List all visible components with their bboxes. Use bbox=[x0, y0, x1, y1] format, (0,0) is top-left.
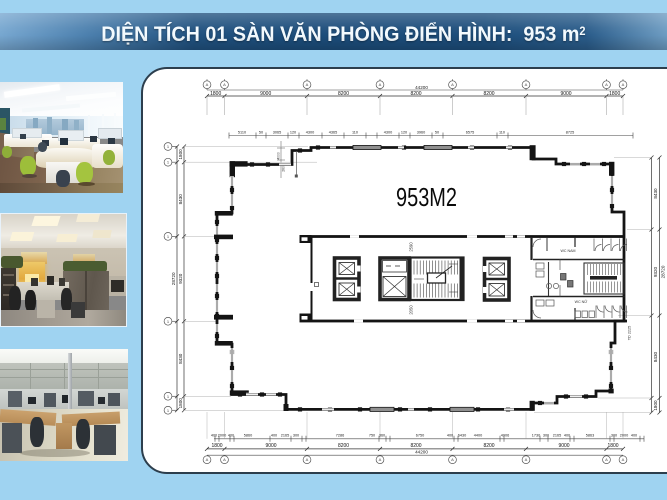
svg-text:4000: 4000 bbox=[277, 152, 281, 160]
svg-text:2000: 2000 bbox=[620, 434, 628, 438]
svg-text:A: A bbox=[206, 457, 209, 462]
svg-text:8430: 8430 bbox=[178, 353, 183, 364]
svg-text:6430: 6430 bbox=[458, 434, 466, 438]
svg-text:400: 400 bbox=[447, 434, 453, 438]
svg-text:9000: 9000 bbox=[560, 91, 571, 97]
svg-text:2165: 2165 bbox=[553, 434, 561, 438]
svg-text:2165: 2165 bbox=[281, 434, 289, 438]
svg-text:9000: 9000 bbox=[558, 443, 569, 449]
svg-text:A: A bbox=[379, 82, 382, 87]
svg-text:4400: 4400 bbox=[474, 434, 482, 438]
svg-text:110: 110 bbox=[499, 130, 505, 134]
svg-text:A: A bbox=[306, 457, 309, 462]
svg-text:2050: 2050 bbox=[409, 305, 414, 315]
svg-text:4906: 4906 bbox=[501, 434, 509, 438]
svg-text:8725: 8725 bbox=[566, 130, 574, 134]
svg-text:400: 400 bbox=[271, 434, 277, 438]
svg-text:A: A bbox=[223, 457, 226, 462]
svg-text:953M2: 953M2 bbox=[396, 182, 457, 212]
svg-text:9320: 9320 bbox=[653, 266, 658, 277]
svg-text:1: 1 bbox=[167, 144, 170, 149]
svg-text:1730: 1730 bbox=[532, 434, 540, 438]
svg-text:WC NỮ: WC NỮ bbox=[575, 299, 588, 304]
svg-text:360: 360 bbox=[379, 434, 385, 438]
svg-text:44200: 44200 bbox=[415, 450, 428, 455]
svg-text:5110: 5110 bbox=[238, 130, 246, 134]
svg-text:3065: 3065 bbox=[273, 130, 281, 134]
svg-text:5860: 5860 bbox=[244, 434, 252, 438]
svg-text:300: 300 bbox=[611, 434, 617, 438]
svg-text:2000: 2000 bbox=[218, 434, 226, 438]
svg-text:8200: 8200 bbox=[483, 91, 494, 97]
svg-text:44200: 44200 bbox=[415, 85, 428, 90]
svg-text:WC NAM: WC NAM bbox=[561, 249, 576, 253]
svg-text:8200: 8200 bbox=[483, 443, 494, 449]
svg-text:120: 120 bbox=[401, 130, 407, 134]
svg-text:28720: 28720 bbox=[661, 265, 666, 278]
svg-text:28720: 28720 bbox=[171, 272, 176, 285]
svg-text:A: A bbox=[451, 82, 454, 87]
svg-text:9000: 9000 bbox=[260, 91, 271, 97]
svg-text:120: 120 bbox=[290, 130, 296, 134]
svg-text:2590: 2590 bbox=[409, 242, 414, 252]
svg-text:A: A bbox=[525, 82, 528, 87]
svg-text:3960: 3960 bbox=[417, 130, 425, 134]
svg-text:1: 1 bbox=[167, 408, 170, 413]
svg-text:A: A bbox=[605, 457, 608, 462]
svg-text:8430: 8430 bbox=[178, 194, 183, 205]
svg-text:9000: 9000 bbox=[265, 443, 276, 449]
svg-text:1800: 1800 bbox=[609, 91, 620, 97]
svg-text:4300: 4300 bbox=[306, 130, 314, 134]
svg-text:1800: 1800 bbox=[653, 400, 658, 411]
svg-text:750: 750 bbox=[369, 434, 375, 438]
svg-text:1: 1 bbox=[167, 319, 170, 324]
svg-text:50: 50 bbox=[259, 130, 263, 134]
svg-text:A: A bbox=[622, 82, 625, 87]
svg-text:7286: 7286 bbox=[336, 434, 344, 438]
svg-text:TD 2225: TD 2225 bbox=[628, 326, 632, 341]
svg-text:1800: 1800 bbox=[211, 443, 222, 449]
svg-text:110: 110 bbox=[352, 130, 358, 134]
svg-text:1800: 1800 bbox=[178, 398, 183, 409]
svg-text:400: 400 bbox=[211, 434, 217, 438]
svg-text:400: 400 bbox=[631, 434, 637, 438]
svg-text:A: A bbox=[306, 82, 309, 87]
svg-text:8430: 8430 bbox=[653, 188, 658, 199]
svg-text:1: 1 bbox=[167, 160, 170, 165]
svg-text:8200: 8200 bbox=[410, 91, 421, 97]
svg-text:50: 50 bbox=[435, 130, 439, 134]
svg-text:A: A bbox=[379, 457, 382, 462]
svg-text:8200: 8200 bbox=[338, 443, 349, 449]
svg-text:8200: 8200 bbox=[410, 443, 421, 449]
svg-text:A: A bbox=[622, 457, 625, 462]
svg-text:9320: 9320 bbox=[178, 273, 183, 284]
svg-text:4300: 4300 bbox=[384, 130, 392, 134]
svg-text:A: A bbox=[451, 457, 454, 462]
svg-text:A: A bbox=[223, 82, 226, 87]
svg-text:8430: 8430 bbox=[653, 351, 658, 362]
svg-text:6575: 6575 bbox=[466, 130, 474, 134]
svg-text:400: 400 bbox=[564, 434, 570, 438]
svg-text:8200: 8200 bbox=[338, 91, 349, 97]
svg-text:400: 400 bbox=[228, 434, 234, 438]
svg-text:1: 1 bbox=[167, 394, 170, 399]
svg-text:1: 1 bbox=[167, 234, 170, 239]
svg-text:1800: 1800 bbox=[210, 91, 221, 97]
svg-text:A: A bbox=[525, 457, 528, 462]
svg-text:6750: 6750 bbox=[416, 434, 424, 438]
svg-text:300: 300 bbox=[293, 434, 299, 438]
svg-text:5863: 5863 bbox=[586, 434, 594, 438]
svg-text:300: 300 bbox=[543, 434, 549, 438]
svg-text:A: A bbox=[605, 82, 608, 87]
svg-text:A: A bbox=[206, 82, 209, 87]
svg-text:1800: 1800 bbox=[607, 443, 618, 449]
svg-text:1800: 1800 bbox=[178, 149, 183, 160]
svg-text:4365: 4365 bbox=[329, 130, 337, 134]
